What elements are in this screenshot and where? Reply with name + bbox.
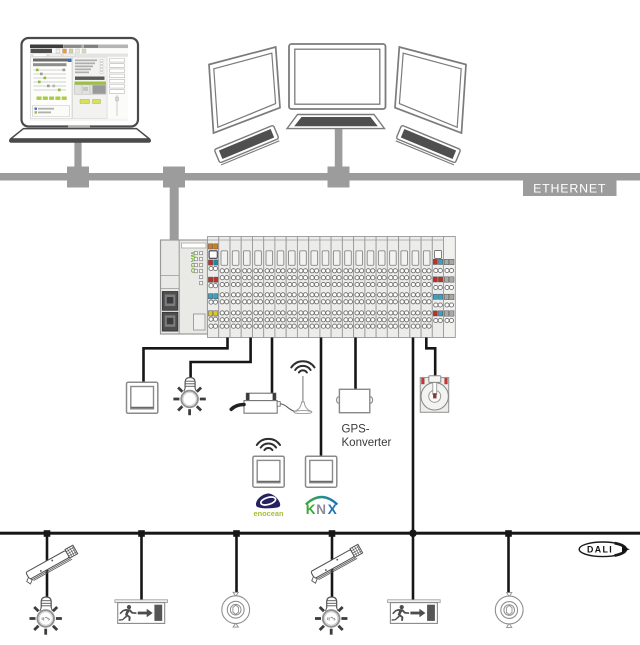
svg-text:GPS-: GPS- [342,424,370,436]
svg-text:ETHERNET: ETHERNET [533,181,606,195]
svg-text:N: N [316,502,326,517]
svg-text:X: X [328,502,337,517]
svg-text:Konverter: Konverter [342,437,392,449]
svg-text:enocean: enocean [254,509,284,518]
svg-text:DALI: DALI [587,544,613,554]
svg-text:K: K [306,502,316,517]
